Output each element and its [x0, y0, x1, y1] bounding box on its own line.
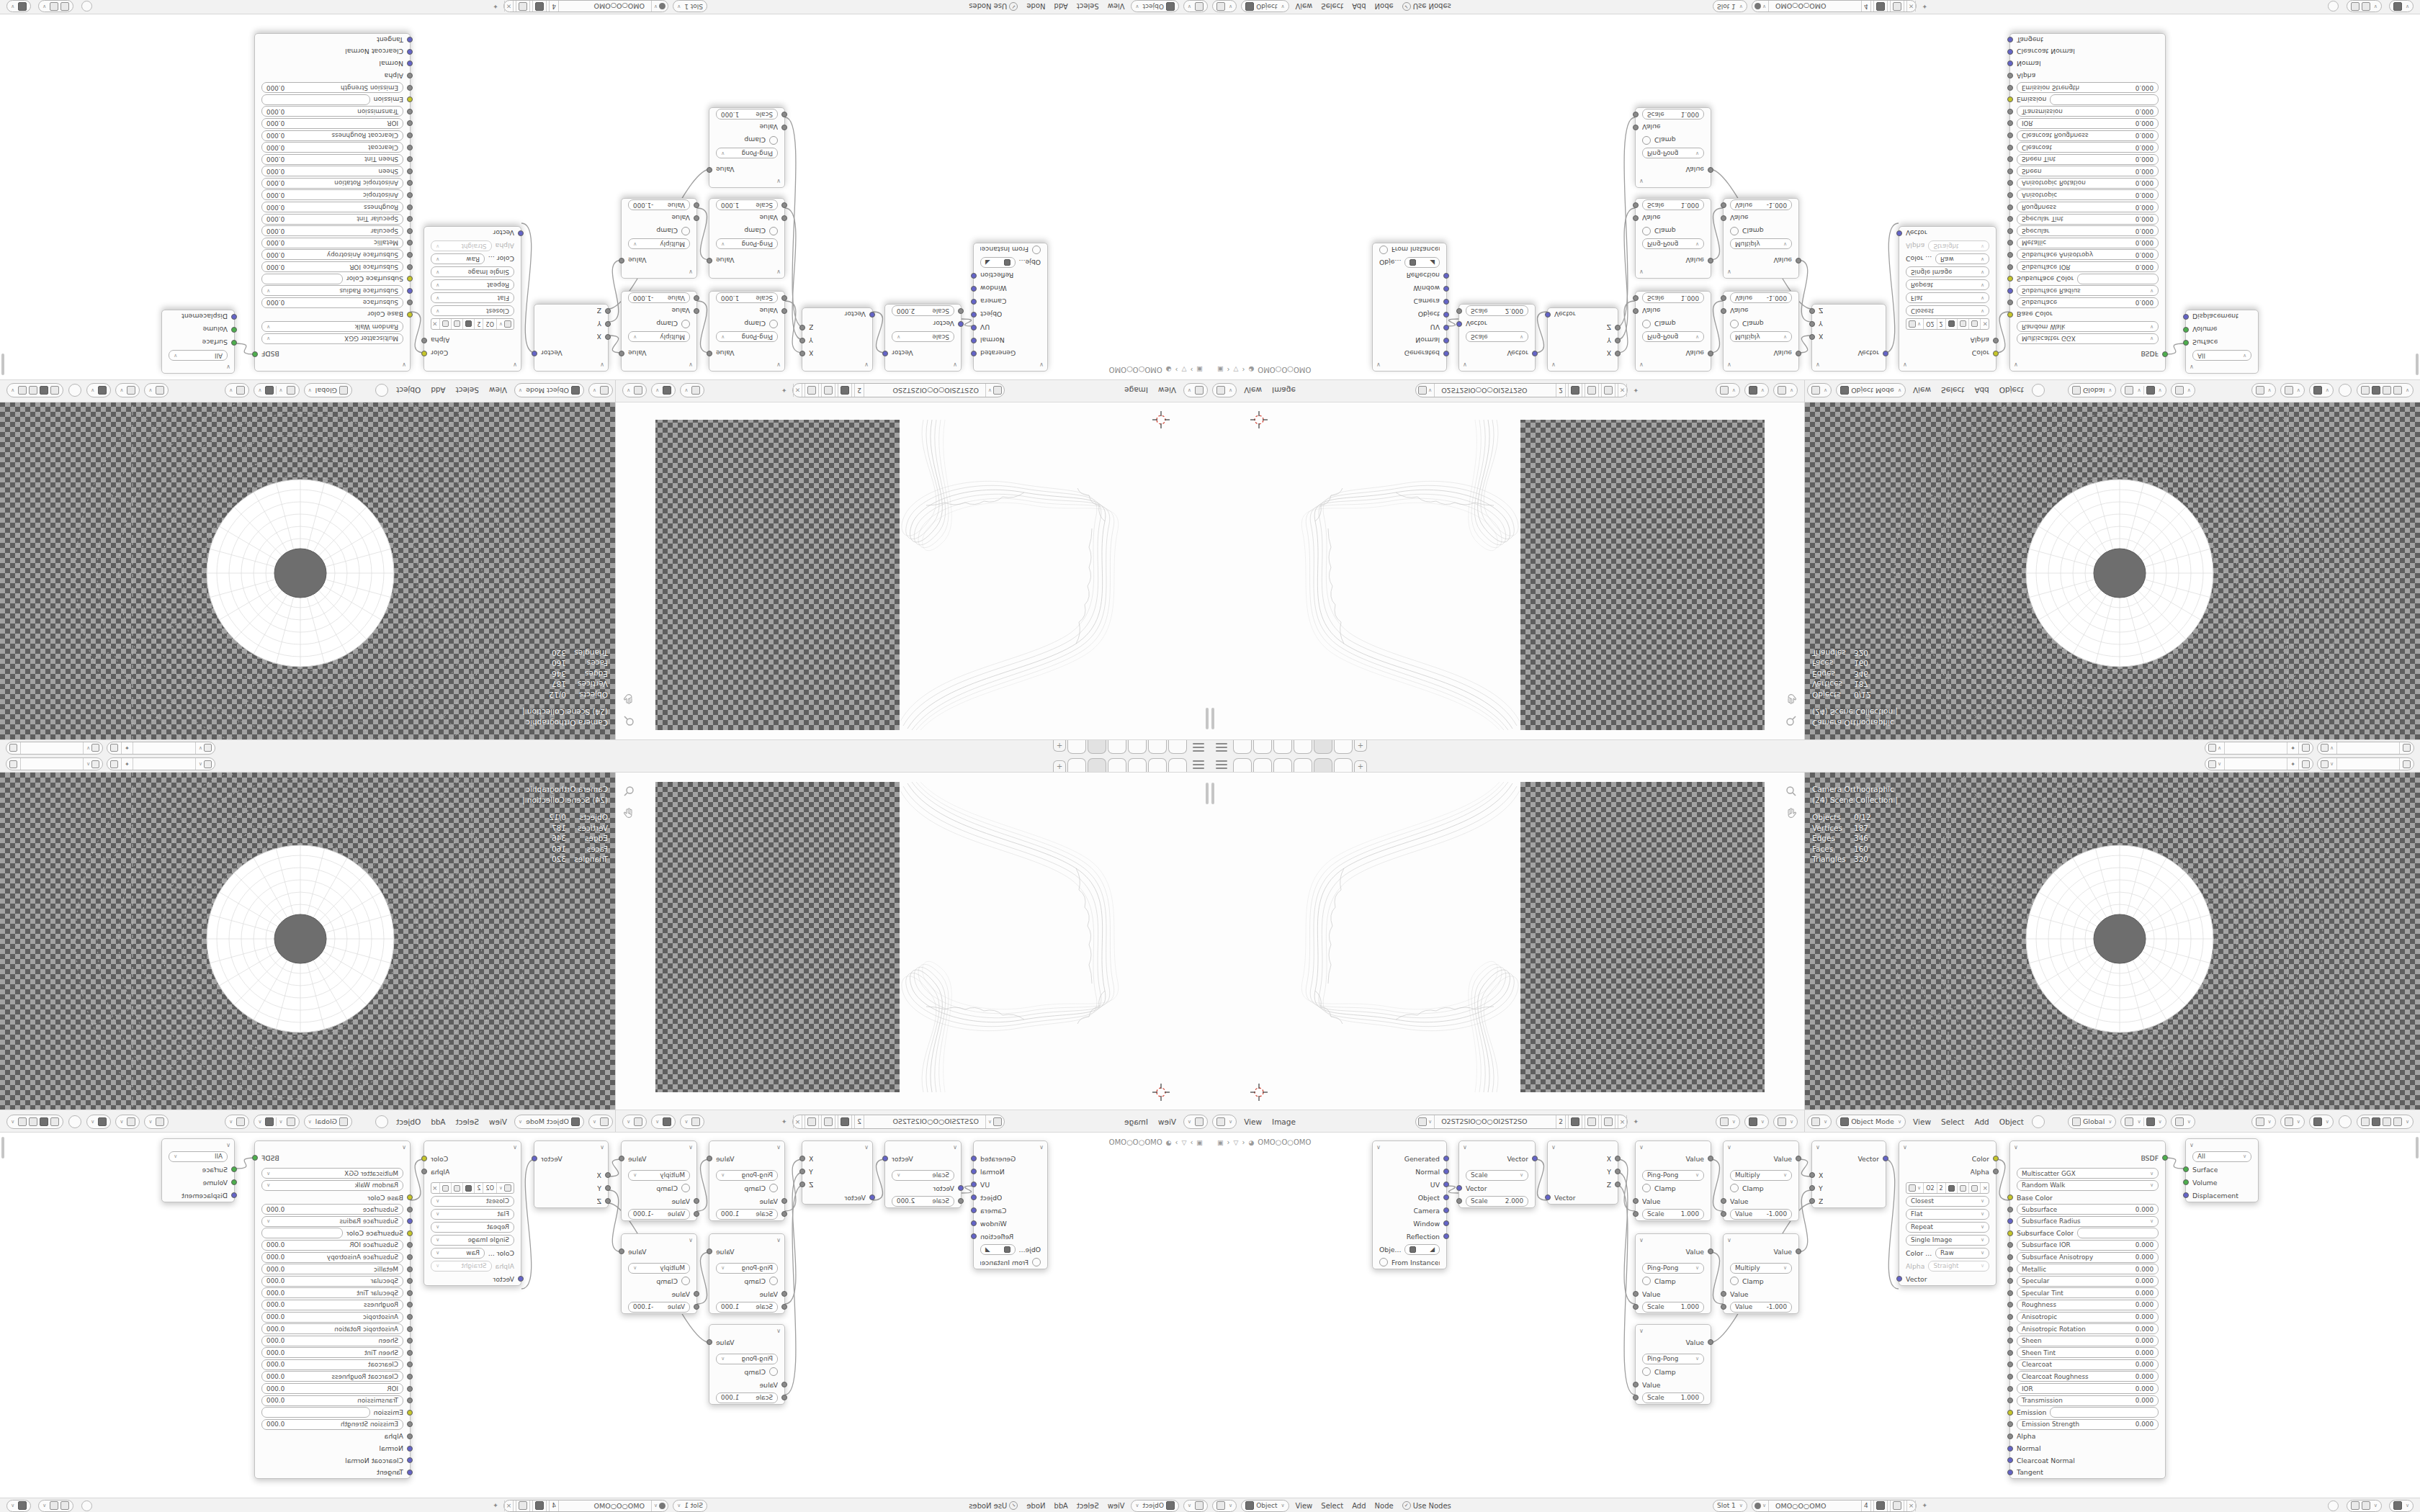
checkbox-clamp[interactable] [681, 320, 690, 328]
dropdown-multiscatter-ggx[interactable]: Multiscatter GGX∨ [2017, 333, 2159, 344]
menu-add[interactable]: Add [1974, 387, 1989, 395]
socket[interactable] [2007, 1470, 2013, 1475]
node-math-multiply-2[interactable]: ∨ValueMultiply∨ClampValueValue-1.000 [621, 198, 697, 279]
dropdown-raw[interactable]: Raw∨ [431, 254, 485, 265]
socket[interactable] [2007, 132, 2013, 138]
value-field-specular[interactable]: Specular0.000 [2017, 225, 2159, 236]
socket[interactable] [407, 109, 413, 114]
2d-cursor[interactable] [1152, 1084, 1170, 1101]
socket[interactable] [407, 1314, 413, 1320]
socket[interactable] [407, 264, 413, 270]
socket[interactable] [958, 1198, 964, 1204]
node-collapse-chevron[interactable]: ∨ [1812, 360, 1886, 371]
solid-shading-icon[interactable] [2372, 1117, 2380, 1126]
viewlayer-selector[interactable]: ∨ [6, 742, 103, 755]
snapping-group[interactable]: ∨ ∨ [2120, 1115, 2166, 1129]
menu-view[interactable]: View [489, 1117, 507, 1126]
dropdown-flat[interactable]: Flat∨ [431, 1209, 514, 1220]
dropdown-single-image[interactable]: Single Image∨ [1906, 1235, 1989, 1246]
value-field-anisotropic-rotation[interactable]: Anisotropic Rotation0.000 [261, 178, 403, 189]
socket[interactable] [2007, 1314, 2013, 1320]
value-field-anisotropic-rotation[interactable]: Anisotropic Rotation0.000 [2017, 1323, 2159, 1334]
node-collapse-chevron[interactable]: ∨ [885, 1141, 961, 1152]
value-field-scale[interactable]: Scale1.000 [1642, 200, 1704, 211]
value-field-clearcoat-roughness[interactable]: Clearcoat Roughness0.000 [2017, 130, 2159, 141]
value-field-sheen[interactable]: Sheen0.000 [261, 166, 403, 176]
fake-user-shield-icon[interactable] [1873, 1500, 1888, 1511]
socket[interactable] [1721, 1211, 1726, 1217]
socket[interactable] [1443, 273, 1449, 279]
node-vector-math-scale[interactable]: ∨VectorScale∨VectorScale2.000 [1458, 304, 1536, 372]
socket[interactable] [407, 60, 413, 66]
pin-image-icon[interactable]: ✦ [1633, 1118, 1639, 1125]
checkbox-from-instancer[interactable] [1379, 246, 1388, 254]
new-scene-icon[interactable] [2299, 742, 2313, 754]
snapping-group[interactable]: ∨ [38, 1500, 73, 1512]
add-workspace-button[interactable]: + [1354, 740, 1367, 752]
node-math-multiply-1[interactable]: ∨ValueMultiply∨ClampValueValue-1.000 [1723, 1140, 1799, 1221]
value-field-subsurface-ior[interactable]: Subsurface IOR0.000 [261, 261, 403, 272]
pan-hand-icon[interactable] [1785, 693, 1797, 705]
node-image-texture[interactable]: ∨ColorAlpha∨O22×Closest∨Flat∨Repeat∨Sing… [423, 1140, 521, 1286]
proportional-editing-group[interactable]: ∨ [225, 1115, 249, 1129]
fake-user-shield-icon[interactable] [838, 1115, 852, 1128]
image-canvas[interactable] [655, 782, 1161, 1092]
image-datablock-selector[interactable]: ∨ O2ST2SIO○O○OI2ST2SO 2 × [792, 1115, 1005, 1129]
node-math-ping-pong-3[interactable]: ∨ValuePing-Pong∨ClampValueScale1.000 [709, 107, 785, 188]
socket[interactable] [1809, 1198, 1815, 1204]
checkbox-clamp[interactable] [1642, 1277, 1651, 1285]
dropdown-closest[interactable]: Closest∨ [431, 306, 514, 317]
socket[interactable] [882, 1156, 888, 1161]
image-users-count[interactable]: 2 [854, 384, 864, 397]
image-editor-scrollbar[interactable] [1206, 708, 1209, 729]
dropdown-all[interactable]: All∨ [169, 1151, 228, 1162]
value-field-subsurface-ior[interactable]: Subsurface IOR0.000 [261, 1240, 403, 1251]
socket[interactable] [2007, 85, 2013, 91]
unlink-material-icon[interactable]: × [1906, 1500, 1917, 1511]
socket[interactable] [605, 1185, 611, 1191]
fake-user-shield-icon[interactable] [1568, 1115, 1582, 1128]
value-field-specular[interactable]: Specular0.000 [2017, 1276, 2159, 1287]
image-users-count[interactable]: 2 [1556, 1115, 1566, 1128]
checkbox-clamp[interactable] [1730, 1184, 1739, 1192]
socket[interactable] [971, 1207, 977, 1213]
socket[interactable] [2007, 1421, 2013, 1427]
menu-view[interactable]: View [1244, 387, 1262, 395]
socket[interactable] [407, 120, 413, 126]
value-field-roughness[interactable]: Roughness0.000 [2017, 202, 2159, 212]
dropdown-ping-pong[interactable]: Ping-Pong∨ [716, 332, 778, 343]
socket[interactable] [407, 300, 413, 305]
socket[interactable] [2007, 1434, 2013, 1439]
new-viewlayer-icon[interactable] [2400, 758, 2414, 770]
snapping-group[interactable]: ∨ [2347, 1, 2382, 13]
value-field-clearcoat-roughness[interactable]: Clearcoat Roughness0.000 [261, 130, 403, 141]
shading-mode-group[interactable]: ∨ [2357, 384, 2414, 398]
socket[interactable] [971, 351, 977, 356]
checkbox-clamp[interactable] [769, 136, 778, 145]
image-canvas[interactable] [655, 420, 1161, 730]
socket[interactable] [2007, 73, 2013, 78]
viewlayer-name-field[interactable] [2337, 742, 2400, 754]
socket[interactable] [882, 351, 888, 356]
socket[interactable] [694, 1198, 699, 1204]
dropdown-multiply[interactable]: Multiply∨ [1730, 1170, 1792, 1181]
menu-add[interactable]: Add [1352, 1502, 1366, 1510]
socket[interactable] [407, 1386, 413, 1392]
pin-material-icon[interactable]: ✦ [493, 3, 498, 10]
scene-selector[interactable]: ∨ ✦ [2205, 742, 2313, 755]
value-field-sheen-tint[interactable]: Sheen Tint0.000 [261, 154, 403, 165]
zoom-icon[interactable] [1785, 715, 1797, 726]
socket[interactable] [605, 334, 611, 340]
socket[interactable] [2007, 168, 2013, 174]
checkbox-clamp[interactable] [769, 320, 778, 328]
socket[interactable] [1443, 286, 1449, 292]
editor-type-selector[interactable]: ∨ [1212, 1115, 1237, 1129]
dropdown-flat[interactable]: Flat∨ [1906, 1209, 1989, 1220]
image-canvas[interactable] [1259, 420, 1765, 730]
dropdown-repeat[interactable]: Repeat∨ [1906, 1222, 1989, 1233]
menu-view[interactable]: View [1296, 1502, 1313, 1510]
node-collapse-chevron[interactable]: ∨ [1724, 1234, 1798, 1245]
socket[interactable] [1809, 308, 1815, 314]
socket[interactable] [231, 1192, 237, 1198]
socket[interactable] [605, 308, 611, 314]
socket[interactable] [2007, 156, 2013, 162]
dropdown-straight[interactable]: Straight∨ [1928, 241, 1989, 252]
dropdown-ping-pong[interactable]: Ping-Pong∨ [716, 239, 778, 250]
value-field-value[interactable]: Value-1.000 [1730, 293, 1792, 304]
socket[interactable] [407, 49, 413, 55]
dropdown-random-walk[interactable]: Random Walk∨ [2017, 1180, 2159, 1191]
node-collapse-chevron[interactable]: ∨ [974, 360, 1047, 371]
overlays-dropdown[interactable]: ∨ [2309, 384, 2334, 398]
socket[interactable] [2007, 1326, 2013, 1332]
node-math-multiply-1[interactable]: ∨ValueMultiply∨ClampValueValue-1.000 [1723, 291, 1799, 372]
socket[interactable] [1443, 312, 1449, 318]
socket[interactable] [1615, 338, 1621, 343]
pin-image-icon[interactable]: ✦ [781, 387, 787, 395]
socket[interactable] [407, 1362, 413, 1367]
socket[interactable] [252, 1155, 258, 1161]
use-nodes-checkbox[interactable]: ✓Use Nodes [969, 2, 1018, 11]
pin-material-icon[interactable]: ✦ [1922, 3, 1927, 10]
node-collapse-chevron[interactable]: ∨ [622, 267, 696, 278]
node-collapse-chevron[interactable]: ∨ [709, 176, 784, 187]
workspace-tab-4[interactable] [1294, 758, 1312, 772]
node-combine-xyz[interactable]: ∨VectorXYZ [1811, 1140, 1886, 1208]
material-datablock-selector[interactable]: ∨ OMO○O○OMO 4 × [503, 1, 668, 13]
image-datablock-selector[interactable]: ∨O22× [431, 318, 514, 330]
socket[interactable] [1633, 112, 1639, 117]
menu-select[interactable]: Select [1077, 1502, 1099, 1510]
menu-select[interactable]: Select [456, 1117, 479, 1126]
node-math-ping-pong-1[interactable]: ∨ValuePing-Pong∨ClampValueScale1.000 [709, 1140, 785, 1221]
node-collapse-chevron[interactable]: ∨ [255, 1141, 410, 1152]
value-field-subsurface-ior[interactable]: Subsurface IOR0.000 [2017, 261, 2159, 272]
material-users-count[interactable]: 4 [549, 1500, 559, 1511]
socket[interactable] [1532, 1156, 1538, 1161]
socket[interactable] [1796, 351, 1801, 356]
socket[interactable] [2007, 145, 2013, 150]
value-field-emission-strength[interactable]: Emission Strength0.000 [261, 82, 403, 93]
mask-display-dropdown[interactable]: ∨ [622, 1115, 647, 1129]
viewlayer-name-field[interactable] [2337, 758, 2400, 770]
socket[interactable] [407, 216, 413, 222]
socket[interactable] [2007, 1410, 2013, 1416]
value-field-metallic[interactable]: Metallic0.000 [261, 1264, 403, 1274]
zoom-icon[interactable] [1785, 786, 1797, 797]
socket[interactable] [1993, 351, 1999, 356]
dropdown-multiply[interactable]: Multiply∨ [628, 332, 690, 343]
shader-node-editor[interactable]: ∨GeneratedNormalUVObjectCameraWindowRefl… [1210, 1132, 2420, 1498]
node-collapse-chevron[interactable]: ∨ [802, 360, 872, 371]
node-collapse-chevron[interactable]: ∨ [1724, 360, 1798, 371]
value-field-transmission[interactable]: Transmission0.000 [261, 106, 403, 117]
socket[interactable] [2162, 1155, 2168, 1161]
value-field-scale[interactable]: Scale1.000 [716, 1209, 778, 1220]
dropdown-raw[interactable]: Raw∨ [1935, 1248, 1989, 1259]
checkbox-clamp[interactable] [1730, 1277, 1739, 1285]
socket[interactable] [2007, 216, 2013, 222]
unlink-image-icon[interactable]: × [793, 1115, 803, 1128]
node-collapse-chevron[interactable]: ∨ [1724, 267, 1798, 278]
socket[interactable] [532, 351, 537, 356]
material-users-count[interactable]: 4 [1861, 1500, 1871, 1511]
wireframe-shading-icon[interactable] [50, 1117, 59, 1126]
workspace-tab-2[interactable] [1253, 758, 1272, 772]
checkbox-clamp[interactable] [1642, 1367, 1651, 1376]
socket[interactable] [2183, 327, 2189, 333]
node-collapse-chevron[interactable]: ∨ [622, 1234, 696, 1245]
fake-user-shield-icon[interactable] [838, 384, 852, 397]
value-field-transmission[interactable]: Transmission0.000 [2017, 106, 2159, 117]
color-swatch-subsurface-color[interactable] [2077, 1228, 2159, 1238]
dropdown-ping-pong[interactable]: Ping-Pong∨ [1642, 1170, 1704, 1181]
socket[interactable] [2007, 288, 2013, 294]
node-collapse-chevron[interactable]: ∨ [255, 360, 410, 371]
menu-node[interactable]: Node [1026, 1502, 1045, 1510]
material-shading-icon[interactable] [29, 387, 37, 395]
dropdown-multiply[interactable]: Multiply∨ [628, 1170, 690, 1181]
fake-user-shield-icon[interactable] [1873, 1, 1888, 12]
object-field[interactable]: ◢ [1404, 1244, 1440, 1255]
image-canvas[interactable] [1259, 782, 1765, 1092]
value-field-clearcoat-roughness[interactable]: Clearcoat Roughness0.000 [261, 1371, 403, 1382]
pin-image-icon[interactable]: ✦ [781, 1118, 787, 1125]
socket[interactable] [1615, 1169, 1621, 1174]
menu-add[interactable]: Add [1054, 1502, 1067, 1510]
socket[interactable] [2183, 1179, 2189, 1185]
image-editor-scrollbar[interactable] [1211, 708, 1214, 729]
object-visibility-dropdown[interactable]: ∨ [2251, 384, 2276, 398]
shader-node-editor[interactable]: ∨GeneratedNormalUVObjectCameraWindowRefl… [0, 14, 1210, 380]
tool-settings-toggle[interactable] [375, 384, 388, 397]
socket[interactable] [407, 288, 413, 294]
material-name[interactable]: OMO○O○OMO [561, 3, 649, 11]
object-visibility-dropdown[interactable]: ∨ [2251, 1115, 2276, 1129]
node-combine-xyz[interactable]: ∨VectorXYZ [1811, 304, 1886, 372]
pin-image-icon[interactable]: ✦ [1633, 387, 1639, 395]
dropdown-ping-pong[interactable]: Ping-Pong∨ [1642, 1263, 1704, 1274]
socket[interactable] [231, 1179, 237, 1185]
socket[interactable] [407, 156, 413, 162]
socket[interactable] [2007, 1207, 2013, 1212]
material-users-count[interactable]: 4 [549, 1, 559, 12]
color-swatch-emission[interactable] [2050, 94, 2159, 105]
unlink-material-icon[interactable]: × [1906, 1, 1917, 12]
new-viewlayer-icon[interactable] [6, 758, 20, 770]
value-field-value[interactable]: Value-1.000 [628, 200, 690, 211]
socket[interactable] [1896, 1276, 1902, 1282]
menu-object[interactable]: Object [1999, 1117, 2024, 1126]
workspace-tab-2[interactable] [1148, 740, 1167, 754]
socket[interactable] [407, 1410, 413, 1416]
socket[interactable] [1633, 202, 1639, 208]
snapping-group[interactable]: ∨ [2347, 1500, 2382, 1512]
socket[interactable] [971, 1220, 977, 1226]
socket[interactable] [2007, 1338, 2013, 1344]
dropdown-subsurface-radius[interactable]: Subsurface Radius∨ [2017, 1216, 2159, 1227]
overlays-dropdown[interactable]: ∨ [651, 1115, 676, 1129]
value-field-specular[interactable]: Specular0.000 [261, 225, 403, 236]
socket[interactable] [407, 1434, 413, 1439]
rendered-shading-icon[interactable] [18, 1117, 27, 1126]
socket[interactable] [421, 1156, 427, 1161]
socket[interactable] [781, 295, 787, 301]
scene-name-field[interactable] [2225, 758, 2287, 770]
use-nodes-checkbox[interactable]: ✓Use Nodes [969, 1501, 1018, 1510]
socket[interactable] [781, 1395, 787, 1400]
dropdown-raw[interactable]: Raw∨ [1935, 254, 1989, 265]
menu-node[interactable]: Node [1375, 1502, 1394, 1510]
socket[interactable] [407, 1194, 413, 1200]
pin-material-icon[interactable]: ✦ [1922, 1502, 1927, 1509]
value-field-subsurface[interactable]: Subsurface0.000 [2017, 1204, 2159, 1215]
dropdown-multiscatter-ggx[interactable]: Multiscatter GGX∨ [261, 333, 403, 344]
node-collapse-chevron[interactable]: ∨ [1636, 267, 1711, 278]
socket[interactable] [1456, 321, 1462, 327]
node-collapse-chevron[interactable]: ∨ [424, 1141, 521, 1152]
socket[interactable] [2007, 1230, 2013, 1236]
socket[interactable] [1721, 308, 1726, 314]
node-math-multiply-2[interactable]: ∨ValueMultiply∨ClampValueValue-1.000 [621, 1233, 697, 1314]
value-field-ior[interactable]: IOR0.000 [2017, 118, 2159, 129]
node-math-ping-pong-2[interactable]: ∨ValuePing-Pong∨ClampValueScale1.000 [1635, 1233, 1711, 1314]
menu-object[interactable]: Object [1999, 387, 2024, 395]
node-math-multiply-1[interactable]: ∨ValueMultiply∨ClampValueValue-1.000 [621, 1140, 697, 1221]
socket[interactable] [407, 1470, 413, 1475]
material-users-count[interactable]: 4 [1861, 1, 1871, 12]
socket[interactable] [2183, 340, 2189, 346]
value-field-value[interactable]: Value-1.000 [1730, 1209, 1792, 1220]
value-field-metallic[interactable]: Metallic0.000 [2017, 1264, 2159, 1274]
mask-display-dropdown[interactable]: ∨ [622, 384, 647, 398]
checkbox-clamp[interactable] [769, 1277, 778, 1285]
value-field-transmission[interactable]: Transmission0.000 [2017, 1395, 2159, 1406]
value-field-subsurface[interactable]: Subsurface0.000 [261, 297, 403, 308]
workspace-tab-6[interactable] [1067, 758, 1086, 772]
scene-selector[interactable]: ∨ ✦ [2205, 757, 2313, 770]
node-separate-xyz[interactable]: ∨XYZVector [1547, 1140, 1618, 1205]
socket[interactable] [694, 202, 699, 208]
socket[interactable] [2007, 37, 2013, 42]
scene-name-field[interactable] [133, 742, 195, 754]
node-material-output[interactable]: ∨All∨SurfaceVolumeDisplacement [161, 1138, 235, 1202]
value-field-sheen[interactable]: Sheen0.000 [2017, 1336, 2159, 1346]
socket[interactable] [407, 240, 413, 246]
image-editor-scrollbar[interactable] [1206, 783, 1209, 804]
value-field-emission-strength[interactable]: Emission Strength0.000 [2017, 82, 2159, 93]
value-field-specular-tint[interactable]: Specular Tint0.000 [2017, 1287, 2159, 1298]
image-name[interactable]: O2ST2SIO○O○OI2ST2SO [1437, 1117, 1554, 1125]
editor-type-selector[interactable]: ∨ [1183, 384, 1208, 398]
material-slot-dropdown[interactable]: Slot 1∨ [1713, 1, 1747, 13]
menu-add[interactable]: Add [1352, 3, 1366, 11]
snap-toggle[interactable] [2328, 1, 2339, 12]
node-material-output[interactable]: ∨All∨SurfaceVolumeDisplacement [161, 310, 235, 374]
dropdown-scale[interactable]: Scale∨ [1466, 1170, 1528, 1181]
dropdown-straight[interactable]: Straight∨ [431, 1261, 492, 1272]
image-users-count[interactable]: 2 [1556, 384, 1566, 397]
socket[interactable] [407, 1290, 413, 1296]
image-editor-scrollbar[interactable] [1211, 783, 1214, 804]
value-field-clearcoat[interactable]: Clearcoat0.000 [2017, 142, 2159, 153]
socket[interactable] [2007, 109, 2013, 114]
value-field-clearcoat-roughness[interactable]: Clearcoat Roughness0.000 [2017, 1371, 2159, 1382]
value-field-ior[interactable]: IOR0.000 [2017, 1383, 2159, 1394]
menu-view[interactable]: View [1158, 387, 1176, 395]
node-math-ping-pong-2[interactable]: ∨ValuePing-Pong∨ClampValueScale1.000 [709, 198, 785, 279]
socket[interactable] [1456, 1185, 1462, 1191]
viewlayer-name-field[interactable] [20, 742, 83, 754]
value-field-anisotropic[interactable]: Anisotropic0.000 [261, 1312, 403, 1323]
new-image-icon[interactable] [1585, 1115, 1599, 1128]
value-field-scale[interactable]: Scale2.000 [1466, 306, 1528, 317]
socket[interactable] [407, 1350, 413, 1356]
image-users-count[interactable]: 2 [854, 1115, 864, 1128]
socket[interactable] [407, 85, 413, 91]
dropdown-ping-pong[interactable]: Ping-Pong∨ [1642, 239, 1704, 250]
value-field-value[interactable]: Value-1.000 [628, 1302, 690, 1313]
node-math-multiply-1[interactable]: ∨ValueMultiply∨ClampValueValue-1.000 [621, 291, 697, 372]
socket[interactable] [2007, 1242, 2013, 1248]
unpack-image-icon[interactable] [1601, 384, 1615, 397]
mode-dropdown[interactable]: Object Mode∨ [1836, 1115, 1906, 1129]
socket[interactable] [694, 1211, 699, 1217]
viewport-3d-area[interactable]: Camera Orthographic (24) Scene Collectio… [0, 380, 615, 739]
rendered-shading-icon[interactable] [18, 387, 27, 395]
node-collapse-chevron[interactable]: ∨ [1459, 1141, 1535, 1152]
node-principled-bsdf[interactable]: ∨BSDFMultiscatter GGX∨Random Walk∨Base C… [254, 33, 411, 372]
dropdown-ping-pong[interactable]: Ping-Pong∨ [716, 1354, 778, 1364]
value-field-ior[interactable]: IOR0.000 [261, 1383, 403, 1394]
pin-scene-icon[interactable]: ✦ [2287, 758, 2299, 770]
socket[interactable] [2007, 1302, 2013, 1308]
mask-display-dropdown[interactable]: ∨ [1773, 384, 1798, 398]
dropdown-scale[interactable]: Scale∨ [892, 1170, 954, 1181]
socket[interactable] [407, 312, 413, 318]
2d-cursor[interactable] [1152, 411, 1170, 428]
socket[interactable] [407, 1398, 413, 1403]
socket[interactable] [407, 96, 413, 102]
menu-image[interactable]: Image [1124, 387, 1148, 395]
socket[interactable] [971, 1233, 977, 1239]
xray-toggle[interactable] [2339, 1115, 2352, 1128]
socket[interactable] [407, 1338, 413, 1344]
